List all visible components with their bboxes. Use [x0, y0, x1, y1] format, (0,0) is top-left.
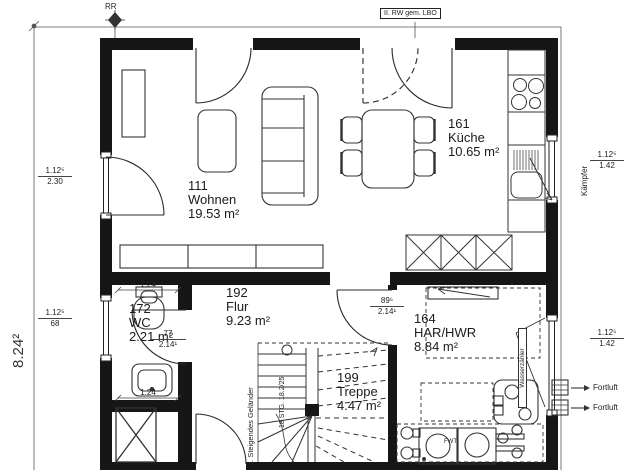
room-number: 192 [226, 286, 270, 300]
overall-height-dimension: 8.24² [10, 300, 27, 368]
room-label-kueche: 161 Küche 10.65 m² [448, 117, 499, 159]
washer [419, 428, 457, 464]
room-number: 199 [337, 371, 381, 385]
room-number: 111 [188, 179, 239, 193]
dim-wc-door: 77 2.14¹ [150, 329, 186, 350]
dryer [458, 428, 496, 464]
dim-right-lower: 1.12⁵ 1.42 [590, 328, 624, 349]
rainpipe-label: RR [105, 2, 117, 11]
dim-right-upper: 1.12⁵ 1.42 [590, 150, 624, 171]
dim-har-door: 89⁵ 2.14¹ [370, 296, 404, 317]
sofa [262, 87, 318, 205]
shaft-crossed [116, 408, 156, 462]
room-number: 172 [129, 302, 173, 316]
fortluft-label-top: Fortluft [593, 383, 618, 392]
room-name: WC [129, 316, 173, 330]
armchair [198, 110, 236, 172]
vent-box-arrow [428, 287, 498, 299]
door-top-left [196, 48, 251, 103]
kitchen-units-crossed [406, 235, 512, 270]
room-name: Wohnen [188, 193, 239, 207]
kaempfer-label: Kämpfer [580, 148, 589, 196]
fwt-label: FWT [444, 439, 457, 445]
wasserzaehler-label: Wasserzähler [518, 328, 527, 408]
terrace-door-window [101, 152, 111, 219]
floor-plan: 111 Wohnen 19.53 m² 161 Küche 10.65 m² 1… [0, 0, 626, 470]
gelaender-label: 2. Steigendes Geländer [246, 346, 255, 466]
door-escape-dashed [363, 48, 418, 103]
entrance-door-swing [196, 414, 246, 464]
room-name: Treppe [337, 385, 381, 399]
dim-left-lower: 1.12⁵ 68 [38, 308, 72, 329]
dim-wc-bottom: 1.24 [118, 388, 178, 397]
room-name: HAR/HWR [414, 326, 476, 340]
room-label-flur: 192 Flur 9.23 m² [226, 286, 270, 328]
room-label-har-hwr: 164 HAR/HWR 8.84 m² [414, 312, 476, 354]
room-area: 9.23 m² [226, 314, 270, 328]
dim-wc-top: 1.24 [118, 280, 178, 289]
dim-left-upper: 1.12⁵ 2.30 [38, 166, 72, 187]
room-name: Küche [448, 131, 499, 145]
floor-plan-linework [0, 0, 626, 470]
shelf [122, 70, 145, 137]
kitchen-sink [511, 150, 552, 200]
living-room-furniture [120, 70, 323, 268]
stufen-label: 18 STG. 18.2/25 [279, 356, 286, 428]
room-label-wohnen: 111 Wohnen 19.53 m² [188, 179, 239, 221]
room-label-treppe: 199 Treppe 4.47 m² [337, 371, 381, 413]
fortluft-vents [552, 380, 590, 415]
wc-window [101, 295, 111, 361]
kitchen-counter [406, 50, 552, 270]
fortluft-label-bottom: Fortluft [593, 403, 618, 412]
room-area: 10.65 m² [448, 145, 499, 159]
room-area: 4.47 m² [337, 399, 381, 413]
room-name: Flur [226, 300, 270, 314]
escape-route-label: II. RW gem. LBO [380, 8, 441, 19]
sideboard [120, 245, 323, 268]
heat-pump [494, 380, 538, 424]
room-area: 19.53 m² [188, 207, 239, 221]
dining-table [362, 110, 414, 188]
room-number: 161 [448, 117, 499, 131]
door-escape-solid [392, 48, 452, 108]
room-area: 8.84 m² [414, 340, 476, 354]
stove-burners [512, 79, 544, 110]
room-number: 164 [414, 312, 476, 326]
terrace-door-swing [106, 157, 164, 215]
chairs [342, 117, 435, 176]
dining-set [342, 110, 435, 188]
